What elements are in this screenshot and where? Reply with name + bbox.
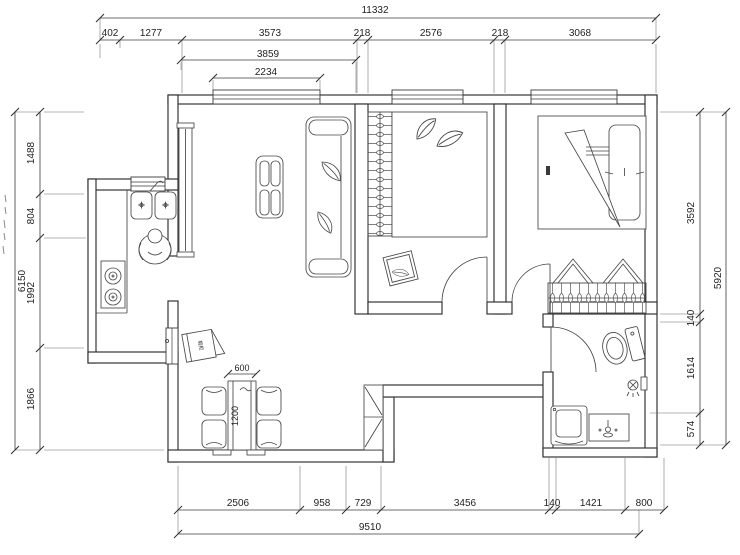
illegible-margin-note: [3, 195, 6, 254]
wall-living-left-lower: [168, 301, 178, 462]
bathroom: [551, 326, 647, 445]
dim-right-total: 5920: [713, 266, 724, 289]
washing-machine: [551, 406, 587, 445]
shower-mixer: [627, 377, 647, 397]
wall-bedroom1-left: [355, 104, 368, 314]
window-bedroom1: [392, 90, 463, 104]
dim-top-1277: 1277: [140, 28, 163, 39]
dim-top-2234: 2234: [255, 67, 278, 78]
dim-top-218b: 218: [492, 28, 509, 39]
stove: [101, 261, 125, 308]
dim-top-3859: 3859: [257, 49, 280, 60]
dim-top-402: 402: [102, 28, 119, 39]
chair: [257, 420, 281, 448]
person-figure: [139, 229, 171, 264]
wall-right: [645, 95, 657, 457]
wall-step-vertical: [383, 397, 394, 462]
wall-radiator-cabinet: [177, 123, 194, 257]
window-living: [213, 90, 320, 104]
toilet: [599, 326, 645, 367]
dim-left-1866: 1866: [26, 387, 37, 410]
bedroom1: [368, 112, 487, 302]
dim-bottom-140: 140: [544, 498, 561, 509]
bed2-mark: [546, 166, 550, 175]
dim-right-574: 574: [686, 420, 697, 437]
dim-right-1614: 1614: [686, 356, 697, 379]
wall-living-left-upper: [168, 95, 178, 256]
dim-bottom-3456: 3456: [454, 498, 477, 509]
wardrobe-bedroom2: [548, 259, 646, 313]
window-left-small: [166, 328, 178, 364]
wall-door-stub: [487, 302, 512, 314]
wall-corridor-bottom: [383, 385, 550, 397]
vanity-sink: [589, 414, 629, 441]
dimensions-bottom: 2506 958 729 3456 140 1421 800 9510: [174, 458, 668, 538]
floor-plan-page: 鞋柜 600 1200: [0, 0, 740, 555]
dim-right-140: 140: [686, 309, 697, 326]
wall-kitchen-bottom: [88, 352, 178, 363]
dim-bottom-958: 958: [314, 498, 331, 509]
dimensions-left: 6150 1488 804 1992 1866: [3, 108, 164, 454]
sofa: [306, 117, 351, 277]
dim-top-3068: 3068: [569, 28, 592, 39]
window-bedroom2: [531, 90, 617, 104]
dim-bottom-total: 9510: [359, 522, 382, 533]
kitchen: [96, 181, 176, 342]
dim-bottom-729: 729: [355, 498, 372, 509]
chair: [257, 387, 281, 415]
wall-dining-bottom: [168, 450, 394, 462]
bedroom2: [512, 116, 646, 313]
wall-bathroom-bottom: [543, 448, 657, 457]
wall-kitchen-left: [88, 179, 96, 363]
dining-set: 600 1200: [202, 363, 281, 455]
dim-bottom-2506: 2506: [227, 498, 250, 509]
door-bedroom1: [442, 257, 487, 302]
bed1: [392, 112, 487, 237]
door-bedroom2: [512, 264, 550, 302]
dim-left-1488: 1488: [26, 141, 37, 164]
dim-left-1992: 1992: [26, 281, 37, 304]
wall-bedroom1-bottom: [368, 302, 442, 314]
dim-top-total: 11332: [361, 5, 389, 16]
dim-top-2576: 2576: [420, 28, 443, 39]
dim-top-3573: 3573: [259, 28, 282, 39]
dimensions-top: 11332 402 1277 3573 218 2576 218 3068 38…: [96, 5, 660, 93]
chair: [202, 420, 226, 448]
dim-bottom-800: 800: [636, 498, 653, 509]
wall-bathroom-left-stub: [543, 314, 553, 327]
nightstand: [383, 251, 418, 286]
tv-cabinet: [256, 156, 283, 218]
window-kitchen: [131, 177, 165, 191]
shoe-cabinet: 鞋柜: [182, 328, 225, 362]
dimensions-right: 3592 140 1614 574 5920: [650, 108, 730, 449]
wall-bedroom-divider: [494, 104, 506, 314]
dim-right-3592: 3592: [686, 201, 697, 224]
dim-bottom-1421: 1421: [580, 498, 603, 509]
floor-plan-canvas: 鞋柜 600 1200: [0, 0, 740, 555]
door-bathroom: [551, 327, 596, 372]
dim-top-218a: 218: [354, 28, 371, 39]
chair: [202, 387, 226, 415]
table-length-dim: 1200: [230, 406, 240, 426]
dim-left-804: 804: [26, 207, 37, 224]
tall-cabinet: [364, 385, 383, 450]
wardrobe-bedroom1: [368, 112, 392, 236]
table-width-dim: 600: [234, 363, 249, 373]
living-room: 鞋柜 600 1200: [177, 117, 383, 455]
